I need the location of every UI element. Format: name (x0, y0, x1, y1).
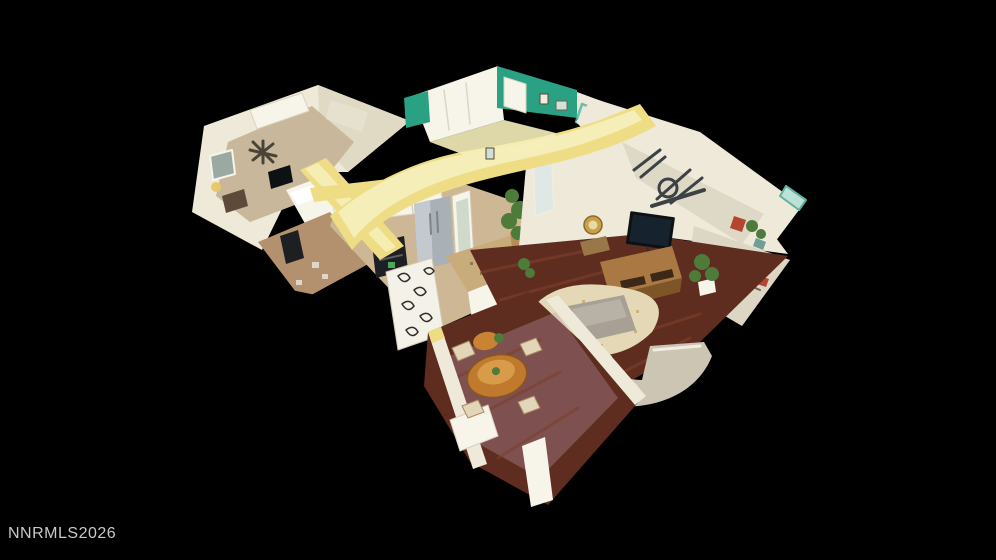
gold-mirror-center (589, 221, 598, 230)
green-wall-left (404, 91, 430, 128)
framed-art (540, 94, 548, 104)
framed-art (486, 148, 494, 159)
watermark: NNRMLS2026 (8, 525, 116, 543)
plant (756, 229, 766, 239)
bedroom-lamp (211, 182, 221, 192)
shadow-gap (262, 284, 350, 352)
plant (746, 220, 758, 232)
tv-screen (629, 214, 671, 246)
plant (494, 333, 504, 343)
bedroom-window (210, 150, 235, 180)
framed-art (556, 101, 567, 110)
dollhouse-3d-view[interactable] (0, 0, 996, 560)
oven-display (388, 262, 395, 268)
tour-viewport[interactable]: NNRMLS2026 (0, 0, 996, 560)
